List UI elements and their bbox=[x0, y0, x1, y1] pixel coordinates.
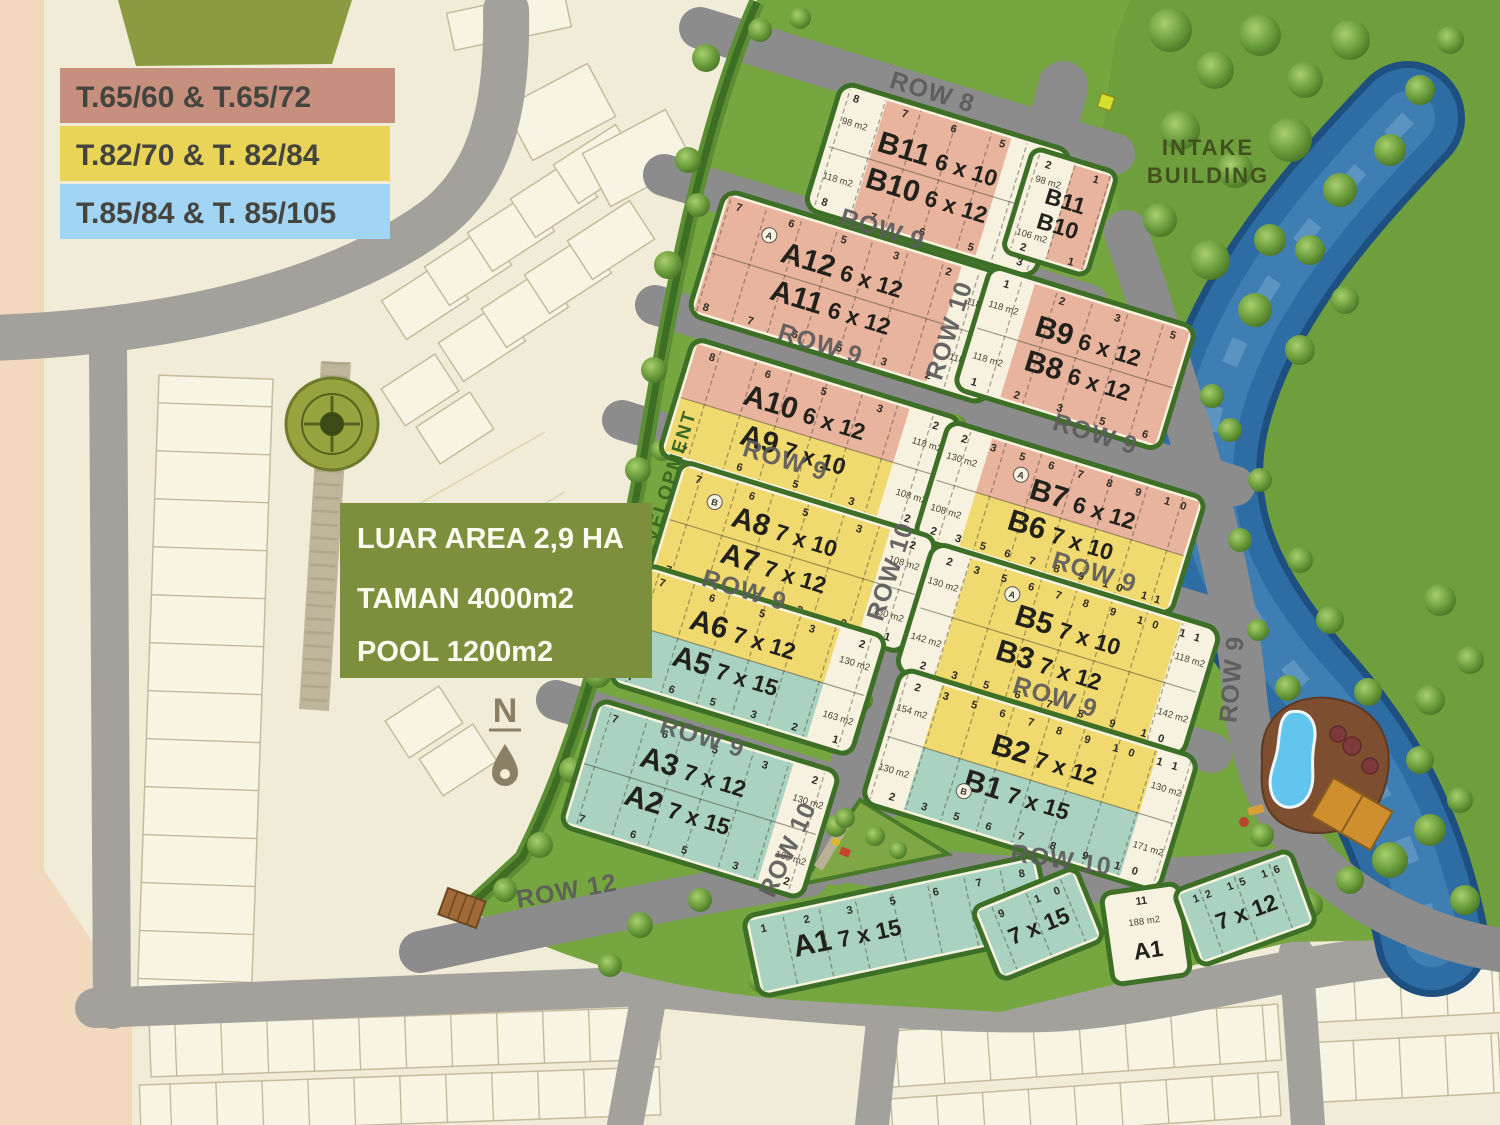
legend-item-t82: T.82/70 & T. 82/84 bbox=[60, 126, 390, 181]
left-lot-strip bbox=[137, 375, 273, 1009]
svg-text:T.65/60 & T.65/72: T.65/60 & T.65/72 bbox=[76, 81, 311, 114]
legend: T.65/60 & T.65/72 T.82/70 & T. 82/84 T.8… bbox=[60, 68, 395, 239]
info-box: LUAR AREA 2,9 HA TAMAN 4000m2 POOL 1200m… bbox=[340, 503, 652, 678]
garden-mandala bbox=[286, 378, 378, 470]
svg-text:POOL 1200m2: POOL 1200m2 bbox=[357, 636, 553, 668]
svg-text:T.82/70 & T. 82/84: T.82/70 & T. 82/84 bbox=[76, 139, 320, 172]
site-plan-map: 8 7 6 5 3 8 7 6 5 3 B116 x 10 B106 x 12 … bbox=[0, 0, 1500, 1125]
svg-text:11: 11 bbox=[1135, 895, 1148, 909]
svg-text:LUAR AREA 2,9 HA: LUAR AREA 2,9 HA bbox=[357, 523, 624, 555]
svg-text:T.85/84 & T. 85/105: T.85/84 & T. 85/105 bbox=[76, 197, 336, 230]
svg-text:TAMAN 4000m2: TAMAN 4000m2 bbox=[357, 583, 574, 615]
legend-item-t65: T.65/60 & T.65/72 bbox=[60, 68, 395, 123]
svg-text:N: N bbox=[493, 692, 518, 730]
intake-building-label-2: BUILDING bbox=[1147, 163, 1269, 188]
legend-item-t85: T.85/84 & T. 85/105 bbox=[60, 184, 390, 239]
intake-building-label: INTAKE bbox=[1162, 135, 1254, 160]
topleft-grass-patch bbox=[118, 0, 352, 66]
svg-text:A1: A1 bbox=[1132, 935, 1165, 965]
site-plan-svg: 8 7 6 5 3 8 7 6 5 3 B116 x 10 B106 x 12 … bbox=[0, 0, 1500, 1125]
